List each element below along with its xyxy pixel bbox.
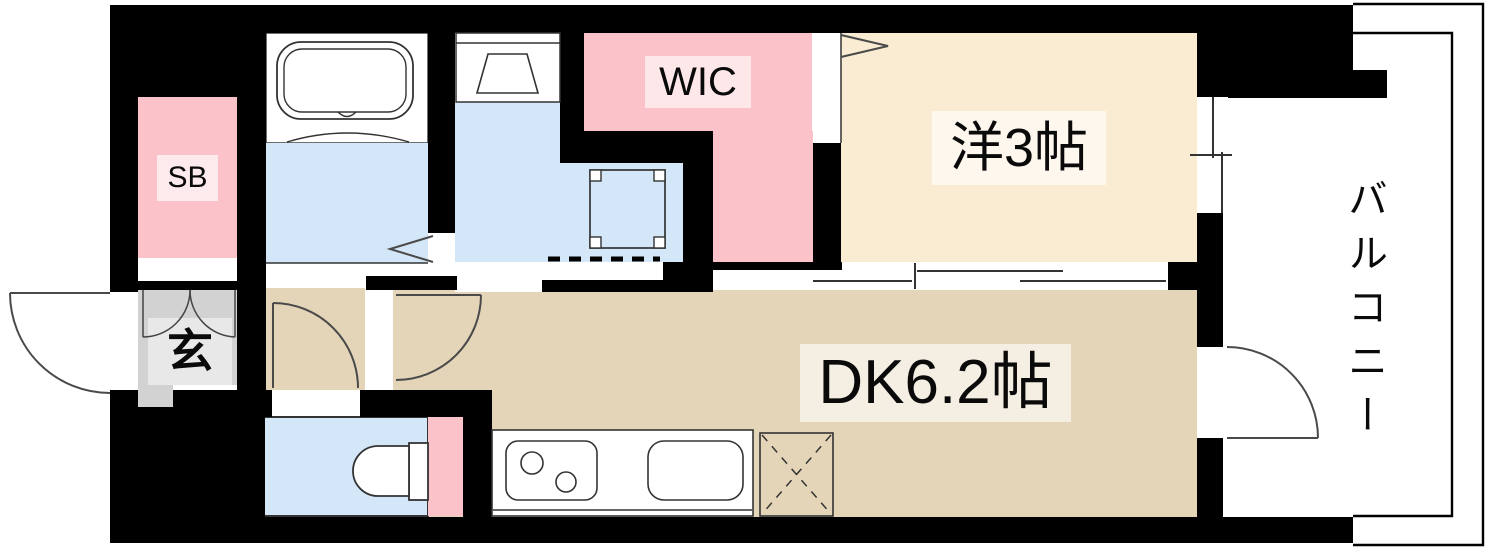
- kitchen-sink: [648, 441, 743, 500]
- wall-top: [110, 5, 1197, 33]
- stove-top: [506, 441, 597, 500]
- wall-bar-hall-top: [366, 276, 457, 290]
- refrigerator-space: [760, 433, 833, 516]
- genkan-inner-mat: [148, 318, 232, 385]
- toilet-bowl: [353, 446, 409, 496]
- toilet-door-opening: [272, 390, 360, 415]
- wall-toilet-left: [237, 390, 272, 417]
- wall-kitchen-left: [463, 415, 492, 517]
- pan-corner: [590, 237, 601, 248]
- wall-right-b: [1197, 262, 1223, 347]
- wall-wic-room: [813, 143, 841, 270]
- wall-bottom: [110, 517, 1353, 543]
- wall-slider-post: [1168, 262, 1197, 290]
- washing-machine-pan: [590, 170, 665, 248]
- genkan: [138, 290, 237, 407]
- floor-plan: SB 玄 WIC 洋3帖 DK6.2帖 バルコニー: [0, 0, 1488, 552]
- pan-corner: [590, 170, 601, 181]
- wall-strip-post: [663, 262, 713, 292]
- shoe-box-room: [138, 97, 237, 258]
- wall-right-c: [1197, 438, 1223, 518]
- toilet-tank: [409, 443, 428, 500]
- toilet: [353, 443, 428, 500]
- wall-top-right-block: [1197, 5, 1353, 70]
- entrance-opening: [110, 292, 138, 390]
- wic-floor-upper: [584, 33, 812, 131]
- floor-plan-drawing: [0, 0, 1488, 552]
- wall-left-upper-mass: [110, 33, 237, 97]
- wall-top-right-step: [1197, 70, 1387, 98]
- kitchen: [492, 430, 753, 516]
- washbasin: [456, 33, 560, 102]
- wall-bath-divider: [428, 33, 455, 233]
- wic-floor-lower: [713, 131, 813, 262]
- balcony-door-opening: [1197, 347, 1223, 438]
- wall-entry-column: [237, 33, 266, 390]
- wall-right-a: [1197, 213, 1223, 262]
- balcony-railing-inner: [1353, 33, 1452, 516]
- genkan-floor-step: [138, 385, 173, 407]
- wall-basin-wic: [560, 33, 584, 131]
- wall-under-wic: [560, 131, 713, 163]
- wall-toilet-right: [360, 390, 492, 417]
- balcony-door-swing-arc: [1227, 347, 1318, 438]
- pan-corner: [654, 170, 665, 181]
- toilet-side-storage: [428, 417, 463, 516]
- slider-track-strip-right: [842, 262, 1168, 290]
- wall-wash-strip-bar: [542, 280, 663, 292]
- pan-corner: [654, 237, 665, 248]
- entrance-door-swing-arc: [10, 293, 110, 393]
- wall-genkan-top-bar: [138, 281, 237, 290]
- western-room-floor: [841, 33, 1197, 262]
